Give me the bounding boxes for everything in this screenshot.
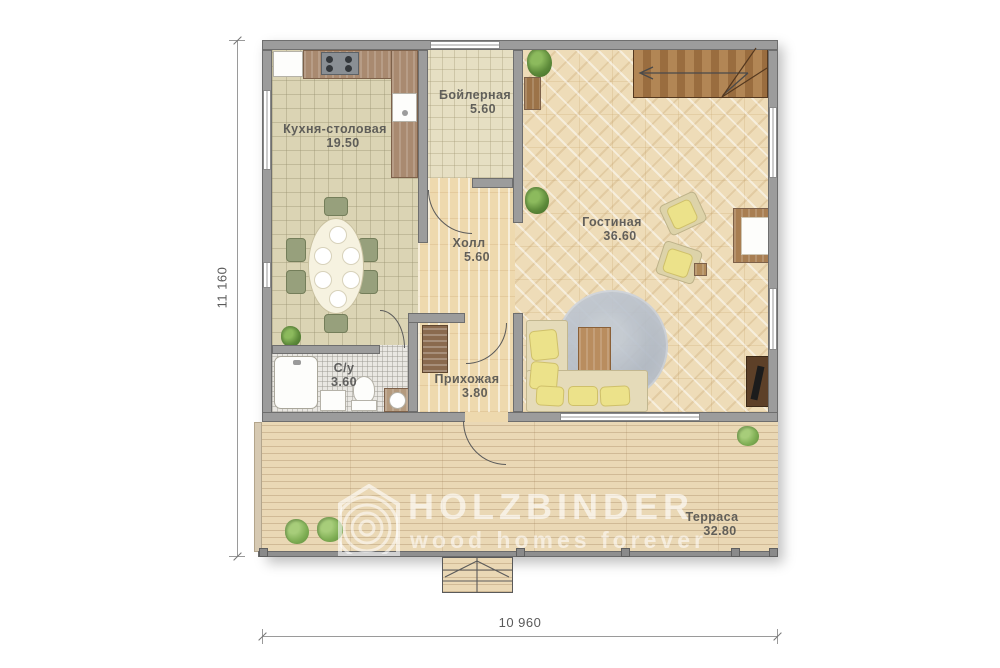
washer <box>320 390 346 411</box>
plant-kitchen <box>281 326 301 347</box>
window-right-living-upper <box>769 107 777 178</box>
toilet-tank <box>351 400 377 411</box>
dining-chair <box>286 270 306 294</box>
room-label-boiler: Бойлерная 5.60 <box>425 88 525 116</box>
room-name: С/у <box>334 361 355 375</box>
terrace-post <box>731 548 740 557</box>
armchair-cushion <box>665 198 699 231</box>
kitchen-sink <box>392 93 417 122</box>
window-left-kitchen-small <box>263 262 271 288</box>
window-left-kitchen <box>263 90 271 170</box>
room-name: Прихожая <box>435 372 500 386</box>
burner-icon <box>326 56 333 63</box>
terrace-steps <box>442 557 513 593</box>
wall-entry-top <box>408 313 465 323</box>
terrace-left-board <box>254 422 262 552</box>
sofa-cushion <box>529 329 560 362</box>
tv-icon <box>751 366 765 401</box>
washbasin-shelf <box>384 388 409 412</box>
stairs <box>633 47 768 98</box>
bathtub <box>274 356 318 409</box>
console-table-top <box>741 217 770 255</box>
plate-icon <box>342 247 360 265</box>
wall-bottom <box>262 412 778 422</box>
terrace-post <box>769 548 778 557</box>
plant-terrace <box>737 426 759 446</box>
dimension-label-vertical: 11 160 <box>215 258 230 318</box>
stove <box>321 52 359 75</box>
dimension-line-horizontal <box>262 636 778 637</box>
room-label-living: Гостиная 36.60 <box>562 215 662 243</box>
wall-bath-top <box>272 345 380 354</box>
room-area: 19.50 <box>275 136 395 150</box>
watermark-subtitle: wood homes forever <box>410 527 707 554</box>
dining-chair <box>286 238 306 262</box>
window-right-living-lower <box>769 288 777 350</box>
wall-top <box>262 40 778 50</box>
wall-kitchen-boiler <box>418 50 428 243</box>
room-name: Кухня-столовая <box>283 122 387 136</box>
room-area: 5.60 <box>425 102 525 116</box>
plate-icon <box>342 271 360 289</box>
plate-icon <box>314 247 332 265</box>
room-name: Гостиная <box>582 215 642 229</box>
room-name: Холл <box>453 236 486 250</box>
burner-icon <box>326 65 333 72</box>
wall-boiler-bottom <box>472 178 513 188</box>
washbasin-icon <box>389 392 406 409</box>
room-label-kitchen: Кухня-столовая 19.50 <box>275 122 395 150</box>
dining-chair <box>324 314 348 333</box>
shoe-cabinet <box>422 325 448 373</box>
fridge <box>273 51 303 77</box>
sofa-cushion <box>599 385 630 407</box>
dining-table <box>308 218 364 314</box>
plate-icon <box>329 290 347 308</box>
wall-boiler-living <box>513 50 523 223</box>
dining-chair <box>324 197 348 216</box>
plant-living-left <box>525 187 549 214</box>
room-name: Бойлерная <box>439 88 511 102</box>
wall-entry-living <box>513 313 523 412</box>
coffee-table <box>578 327 611 372</box>
wall-bath-entry <box>408 313 418 412</box>
window-living-terrace <box>560 413 700 421</box>
watermark-logo <box>337 484 401 556</box>
side-table <box>694 263 707 276</box>
room-area: 36.60 <box>562 229 662 243</box>
room-label-entry: Прихожая 3.80 <box>424 372 510 400</box>
living-cabinet <box>524 77 541 110</box>
wall-right <box>768 50 778 422</box>
room-area: 3.80 <box>424 386 510 400</box>
window-top-boiler <box>430 41 500 49</box>
room-area: 3.60 <box>318 375 370 389</box>
dimension-line-vertical <box>237 40 238 557</box>
plate-icon <box>329 226 347 244</box>
dimension-label-horizontal: 10 960 <box>440 615 600 630</box>
terrace-post <box>259 548 268 557</box>
sofa-cushion <box>535 385 564 406</box>
plant-living-top <box>527 48 552 77</box>
faucet-icon <box>293 360 301 365</box>
watermark-title: HOLZBINDER <box>408 486 694 528</box>
plant-terrace <box>285 519 309 544</box>
burner-icon <box>345 65 352 72</box>
room-area: 5.60 <box>429 250 509 264</box>
room-label-hall: Холл 5.60 <box>429 236 509 264</box>
burner-icon <box>345 56 352 63</box>
sofa-cushion <box>568 386 598 406</box>
room-label-bathroom: С/у 3.60 <box>318 361 370 389</box>
armchair-cushion <box>662 247 694 279</box>
plate-icon <box>314 271 332 289</box>
floor-plan-canvas: Кухня-столовая 19.50 Бойлерная 5.60 Гост… <box>0 0 1000 668</box>
sink-drain-icon <box>402 110 408 116</box>
